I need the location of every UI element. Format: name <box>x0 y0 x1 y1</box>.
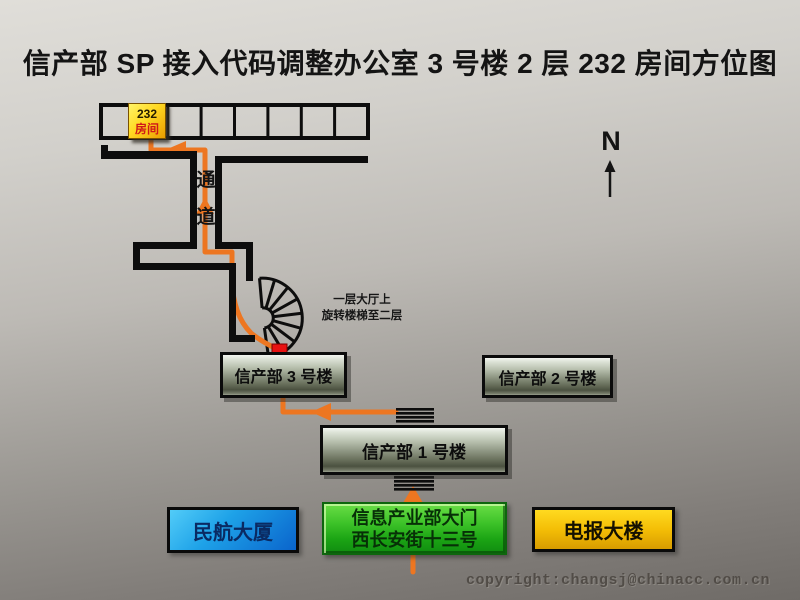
staircase-note-line1: 一层大厅上 <box>298 292 426 308</box>
corridor-label-1: 通 <box>194 171 218 190</box>
entrance-steps-top <box>396 408 434 423</box>
staircase-note-line2: 旋转楼梯至二层 <box>298 308 426 324</box>
route-arrow-left-mid <box>311 403 331 421</box>
building-3-label: 信产部 3 号楼 <box>235 363 333 387</box>
telegraph-label: 电报大楼 <box>564 515 644 544</box>
copyright-watermark: copyright:changsj@chinacc.com.cn <box>466 572 770 589</box>
location-map: 信产部 SP 接入代码调整办公室 3 号楼 2 层 232 房间方位图 <box>0 0 800 600</box>
corridor-label-2: 道 <box>194 208 218 227</box>
north-label: N <box>594 126 628 157</box>
building-3-box: 信产部 3 号楼 <box>220 352 347 398</box>
building-1-box: 信产部 1 号楼 <box>320 425 508 475</box>
room-232-number: 232 <box>129 107 165 122</box>
building-1-label: 信产部 1 号楼 <box>362 438 466 463</box>
ministry-gate-line1: 信息产业部大门 <box>352 507 478 529</box>
staircase-note: 一层大厅上 旋转楼梯至二层 <box>298 292 426 324</box>
north-arrow-icon <box>605 160 616 197</box>
telegraph-box: 电报大楼 <box>532 507 675 552</box>
civil-aviation-label: 民航大厦 <box>193 516 273 545</box>
room-232-label: 房间 <box>129 122 165 137</box>
ministry-gate-line2: 西长安街十三号 <box>352 529 478 551</box>
civil-aviation-box: 民航大厦 <box>167 507 299 553</box>
ministry-gate-box: 信息产业部大门 西长安街十三号 <box>322 502 507 555</box>
room-232-marker: 232 房间 <box>128 103 166 139</box>
building-2-box: 信产部 2 号楼 <box>482 355 613 398</box>
entrance-steps-bottom <box>394 476 434 491</box>
building-2-label: 信产部 2 号楼 <box>499 365 597 389</box>
